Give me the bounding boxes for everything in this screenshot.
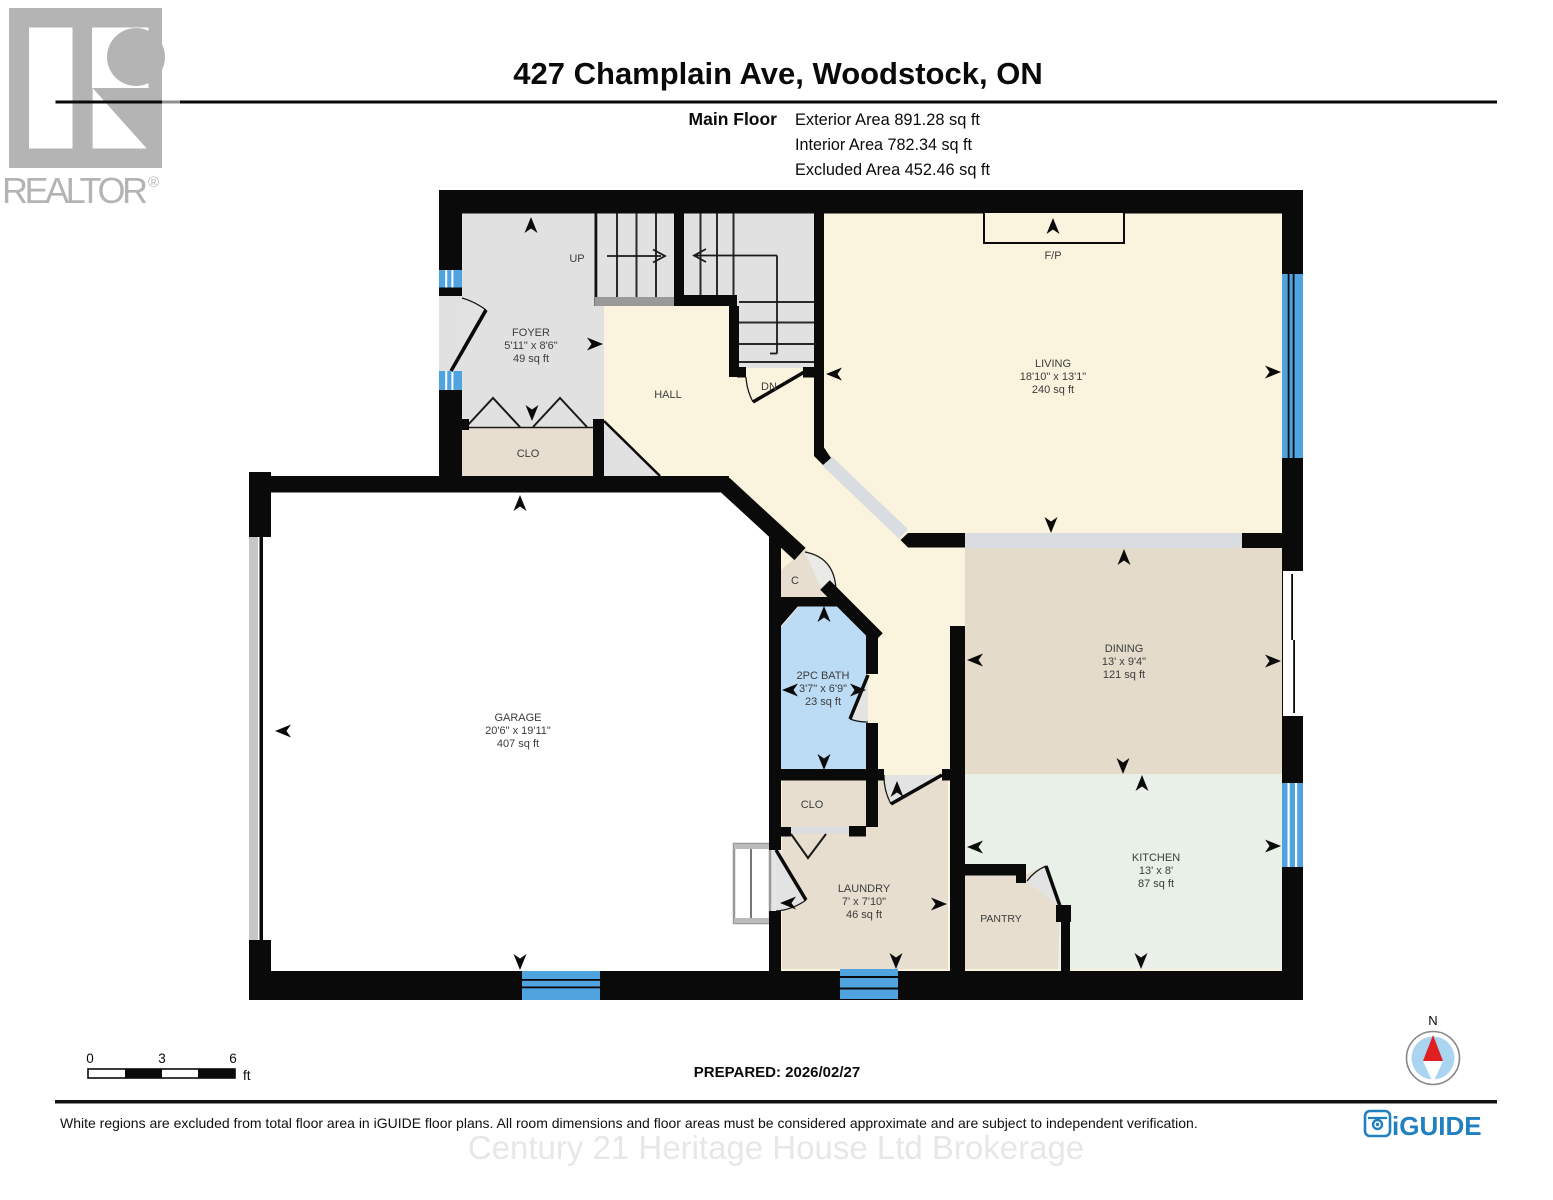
svg-text:White regions are excluded fro: White regions are excluded from total fl…	[60, 1115, 1198, 1131]
svg-text:121 sq ft: 121 sq ft	[1103, 669, 1145, 681]
svg-text:KITCHEN: KITCHEN	[1132, 852, 1180, 864]
svg-text:18'10" x 13'1": 18'10" x 13'1"	[1020, 371, 1087, 383]
svg-text:Exterior Area 891.28 sq ft: Exterior Area 891.28 sq ft	[795, 110, 980, 129]
svg-text:7' x 7'10": 7' x 7'10"	[842, 896, 886, 908]
svg-text:Century 21 Heritage House Ltd: Century 21 Heritage House Ltd Brokerage	[468, 1129, 1084, 1166]
svg-text:ft: ft	[243, 1068, 251, 1083]
svg-text:UP: UP	[569, 253, 584, 265]
svg-text:20'6" x 19'11": 20'6" x 19'11"	[485, 725, 551, 737]
svg-text:DINING: DINING	[1105, 643, 1144, 655]
svg-text:2PC BATH: 2PC BATH	[797, 670, 850, 682]
svg-text:F/P: F/P	[1044, 250, 1061, 262]
svg-text:13' x 8': 13' x 8'	[1139, 865, 1173, 877]
svg-text:PANTRY: PANTRY	[980, 913, 1022, 925]
svg-text:REALTOR: REALTOR	[2, 170, 148, 211]
svg-text:N: N	[1428, 1013, 1437, 1028]
svg-text:C: C	[791, 575, 799, 587]
svg-text:FOYER: FOYER	[512, 327, 550, 339]
svg-text:87 sq ft: 87 sq ft	[1138, 878, 1174, 890]
svg-text:6: 6	[229, 1051, 237, 1066]
svg-text:CLO: CLO	[517, 448, 540, 460]
svg-text:DN: DN	[761, 381, 777, 393]
svg-text:Excluded Area 452.46 sq ft: Excluded Area 452.46 sq ft	[795, 160, 990, 179]
svg-text:46 sq ft: 46 sq ft	[846, 909, 882, 921]
svg-text:13' x 9'4": 13' x 9'4"	[1102, 656, 1146, 668]
svg-text:iGUIDE: iGUIDE	[1392, 1111, 1482, 1141]
svg-text:CLO: CLO	[801, 799, 824, 811]
svg-text:PREPARED: 2026/02/27: PREPARED: 2026/02/27	[694, 1064, 860, 1081]
svg-text:23 sq ft: 23 sq ft	[805, 696, 841, 708]
svg-text:GARAGE: GARAGE	[494, 712, 541, 724]
svg-text:LIVING: LIVING	[1035, 358, 1071, 370]
svg-text:Interior Area 782.34 sq ft: Interior Area 782.34 sq ft	[795, 135, 972, 154]
svg-text:49 sq ft: 49 sq ft	[513, 353, 549, 365]
svg-text:427 Champlain Ave, Woodstock,: 427 Champlain Ave, Woodstock, ON	[513, 56, 1042, 91]
svg-text:LAUNDRY: LAUNDRY	[838, 883, 891, 895]
svg-text:0: 0	[86, 1051, 94, 1066]
svg-text:HALL: HALL	[654, 389, 682, 401]
svg-text:5'11" x 8'6": 5'11" x 8'6"	[504, 340, 557, 352]
svg-text:3: 3	[158, 1051, 166, 1066]
svg-text:240 sq ft: 240 sq ft	[1032, 384, 1074, 396]
svg-text:3'7" x 6'9": 3'7" x 6'9"	[799, 683, 847, 695]
svg-text:407 sq ft: 407 sq ft	[497, 738, 539, 750]
svg-text:®: ®	[148, 174, 159, 191]
svg-text:Main Floor: Main Floor	[689, 109, 778, 129]
